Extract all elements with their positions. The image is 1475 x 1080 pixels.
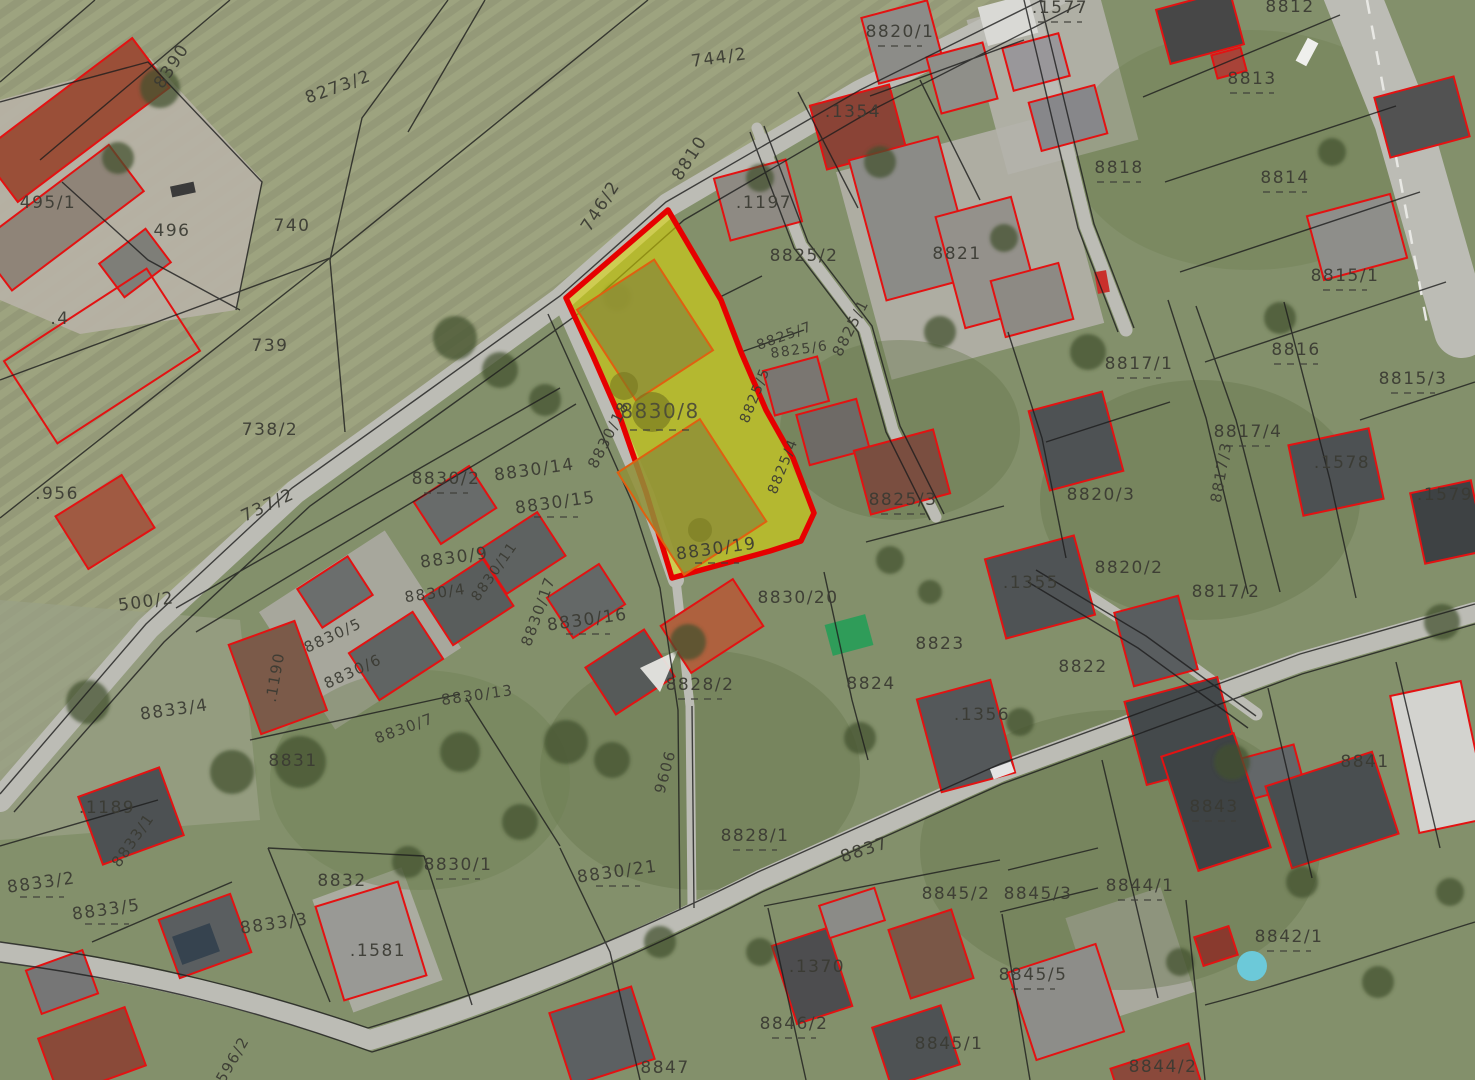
parcel-label: 8822 [1058,657,1107,677]
parcel-label: 8825/3 [869,490,938,510]
parcel-label: 8828/2 [666,675,735,695]
parcel-label: 8817/4 [1214,422,1283,442]
tree [864,146,896,178]
parcel-label: .1197 [736,193,792,213]
parcel-label: .956 [35,484,79,504]
tree [102,142,134,174]
parcel-label: .1189 [79,798,135,818]
parcel-label: .1354 [825,102,881,122]
parcel-label: 8841 [1340,752,1389,772]
tree [502,804,538,840]
parcel-label: 740 [274,216,311,236]
tree [1286,866,1318,898]
parcel-label: 8816 [1271,340,1320,360]
parcel-label: 8820/1 [866,22,935,42]
parcel-label: 496 [154,221,191,241]
parcel-label: 8846/2 [760,1014,829,1034]
parcel-label: .1579 [1417,485,1473,505]
parcel-label: 8844/1 [1106,876,1175,896]
tree [392,846,424,878]
parcel-label: 8815/3 [1379,369,1448,389]
tree [1214,744,1250,780]
parcel-label: 495/1 [20,193,77,213]
tree [1318,138,1346,166]
tree [990,224,1018,252]
highlight-parcel-label: 8830/8 [620,399,699,423]
parcel-label: .1355 [1003,573,1059,593]
parcel-label: 8820/3 [1067,485,1136,505]
parcel-label: 8813 [1227,69,1276,89]
parcel-label: 739 [252,336,289,356]
parcel-label: 8817/2 [1192,582,1261,602]
tree [924,316,956,348]
parcel-label: 8821 [932,244,981,264]
tree [529,384,561,416]
parcel-label: 8812 [1265,0,1314,17]
parcel-label: 8845/1 [915,1034,984,1054]
cadastral-map[interactable]: 8390 8273/2 744/2 495/1 496 740 746/2 88… [0,0,1475,1080]
map-viewport[interactable]: 8390 8273/2 744/2 495/1 496 740 746/2 88… [0,0,1475,1080]
parcel-label: .4 [50,309,69,329]
tree [440,732,480,772]
parcel-label: 8825/2 [770,246,839,266]
tree [210,750,254,794]
parcel-label: 8830/2 [412,469,481,489]
tree [433,316,477,360]
tree [1166,948,1194,976]
parcel-label: 8842/1 [1255,927,1324,947]
parcel-label: 8820/2 [1095,558,1164,578]
tree [1436,878,1464,906]
parcel-label: 8823 [915,634,964,654]
tree [544,720,588,764]
parcel-label: .1370 [789,957,845,977]
parcel-label: 8845/2 [922,884,991,904]
tree [746,164,774,192]
parcel-label: 8814 [1260,168,1309,188]
parcel-label: 8845/3 [1004,884,1073,904]
parcel-label: .1581 [350,941,406,961]
tree [844,722,876,754]
tree [1070,334,1106,370]
pool-round [1237,951,1267,981]
parcel-label: 8828/1 [721,826,790,846]
tree [670,624,706,660]
parcel-label: 8830/1 [424,855,493,875]
tree [876,546,904,574]
tree [1006,708,1034,736]
tree-shadow [688,518,712,542]
parcel-label: .1577 [1032,0,1088,18]
parcel-label: 8830/20 [757,588,838,608]
parcel-label: .1578 [1314,453,1370,473]
parcel-label: 8824 [846,674,895,694]
parcel-label: 8843 [1189,797,1238,817]
parcel-label: 8832 [317,871,366,891]
parcel-label: 8815/1 [1311,266,1380,286]
tree [918,580,942,604]
parcel-label: 8818 [1094,158,1143,178]
parcel-label: 8847 [640,1058,689,1078]
tree [1362,966,1394,998]
parcel-label: 8844/2 [1129,1057,1198,1077]
tree [66,680,110,724]
parcel-label: 8845/5 [999,965,1068,985]
parcel-label: 8831 [268,751,317,771]
parcel-label: 8817/1 [1105,354,1174,374]
tree-shadow [610,372,638,400]
tree [746,938,774,966]
parcel-label: .1356 [954,705,1010,725]
tree [594,742,630,778]
parcel-label: 738/2 [242,420,299,440]
